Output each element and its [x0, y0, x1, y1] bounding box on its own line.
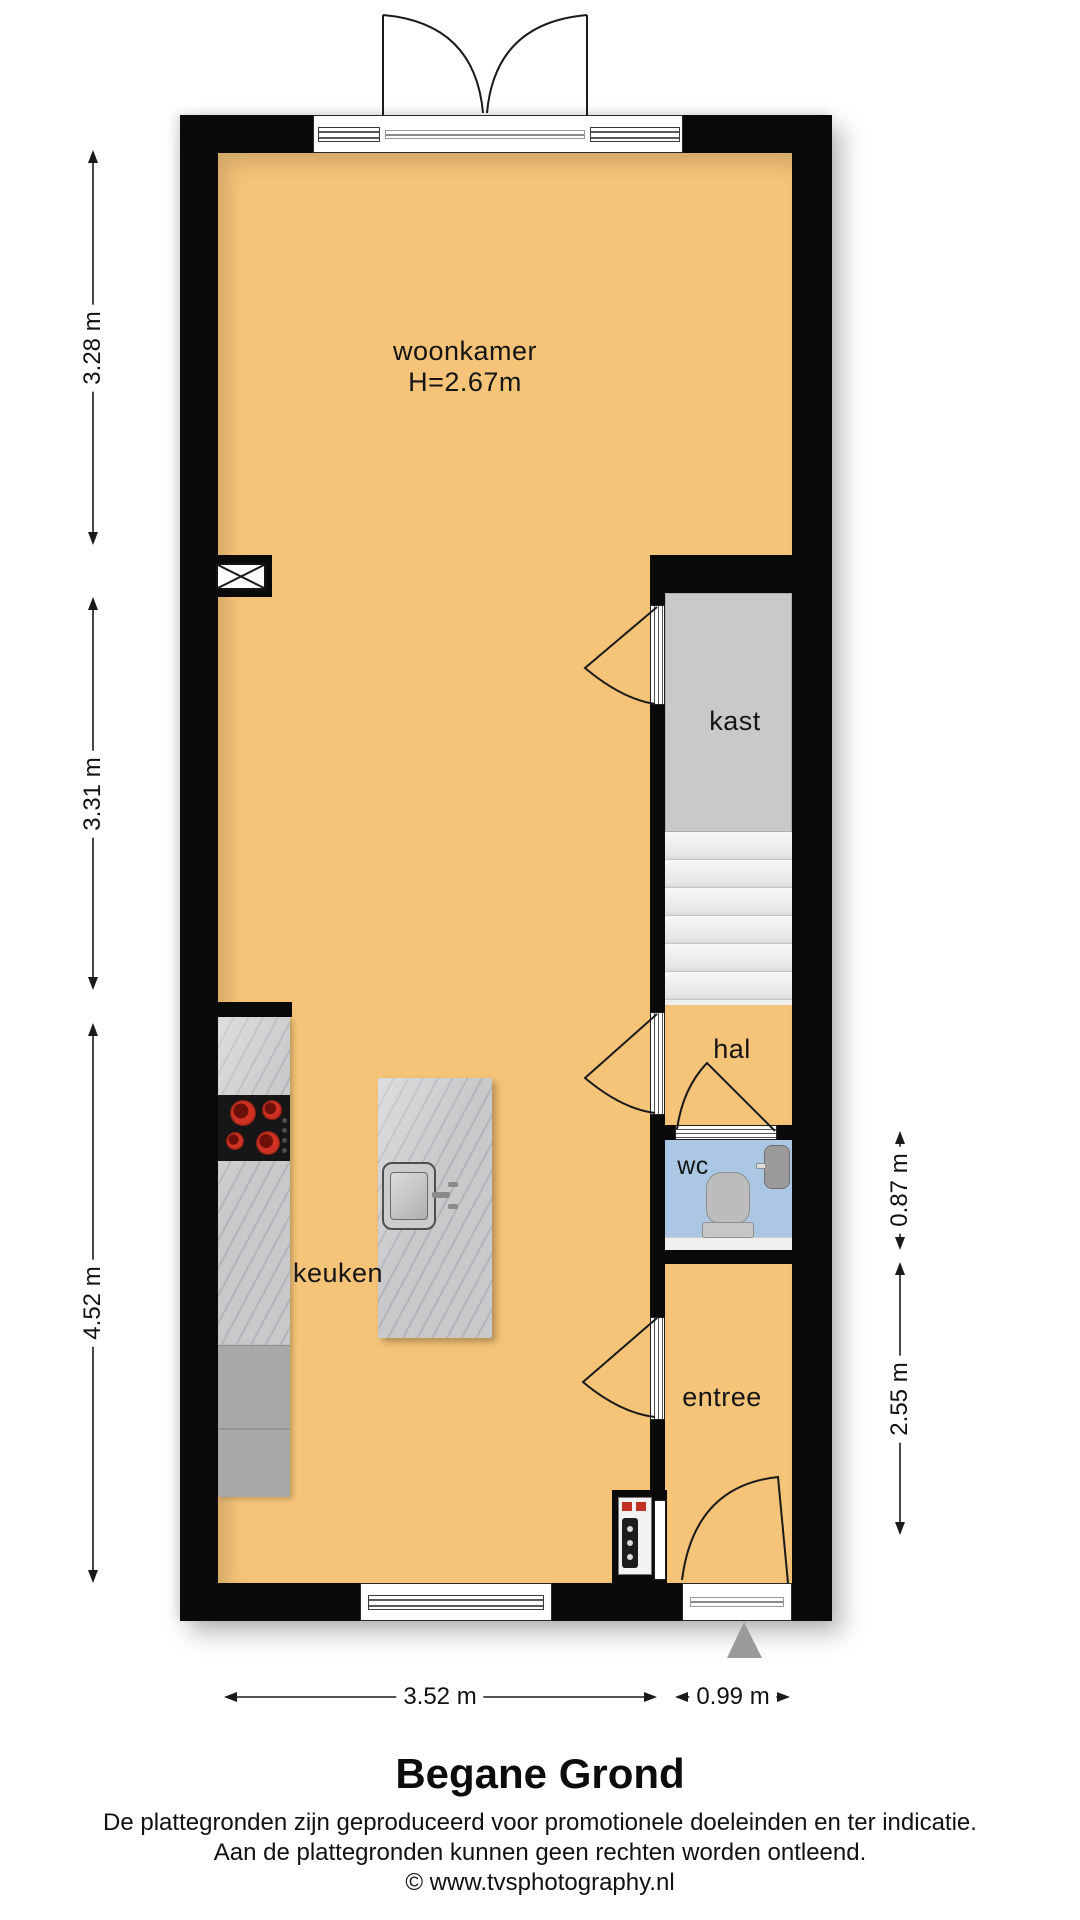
room-label-kast: kast [685, 706, 785, 737]
divider-wall-seg2 [650, 705, 665, 1012]
dim-right-1: 0.87 m [886, 1146, 914, 1233]
stair-step [665, 832, 792, 860]
divider-wall-seg3 [650, 1115, 665, 1317]
stair-step [665, 860, 792, 888]
faucet [432, 1192, 450, 1198]
kitchen-stub-wall [215, 1002, 292, 1017]
credit-line: © www.tvsphotography.nl [0, 1868, 1080, 1898]
wc-top-wall-right [777, 1125, 792, 1140]
kitchen-window-glass [368, 1595, 544, 1610]
dim-left-1: 3.28 m [79, 304, 107, 391]
woonkamer-name: woonkamer [325, 336, 605, 367]
kitchen-counter [218, 1017, 290, 1345]
wc-door-leaf [675, 1125, 777, 1140]
wall-right [792, 115, 832, 1621]
stair-step [665, 916, 792, 944]
cooktop-control-dot [282, 1128, 287, 1133]
dim-left-2: 3.31 m [79, 750, 107, 837]
wc-sink [764, 1145, 790, 1189]
room-label-wc: wc [663, 1152, 723, 1181]
french-door-threshold [385, 130, 585, 139]
french-doors-icon [383, 15, 587, 115]
kast-top-wall [650, 555, 792, 593]
burner [230, 1100, 256, 1126]
hal-door-leaf [650, 1012, 665, 1115]
floorplan-page: woonkamer H=2.67m kast hal wc keuken ent… [0, 0, 1080, 1920]
staircase [665, 832, 792, 1005]
wc-top-wall-left [665, 1125, 675, 1140]
room-label-keuken: keuken [268, 1258, 408, 1289]
stair-step [665, 888, 792, 916]
kitchen-cabinet [218, 1345, 290, 1497]
room-label-woonkamer: woonkamer H=2.67m [325, 336, 605, 398]
vent-box [216, 563, 266, 590]
cooktop-control-dot [282, 1118, 287, 1123]
front-door-leaf-strip [654, 1500, 666, 1580]
meter-red-indicator [622, 1502, 632, 1511]
wc-sink-tap [756, 1163, 766, 1169]
faucet-handle [448, 1204, 458, 1209]
dim-left-3: 4.52 m [79, 1259, 107, 1346]
meter-switch-dot [627, 1554, 633, 1560]
cabinet-divider-line [218, 1428, 290, 1430]
kast-door-leaf [650, 605, 665, 705]
burner [256, 1131, 280, 1155]
dim-bottom-2: 0.99 m [689, 1683, 776, 1711]
meter-switch-dot [627, 1526, 633, 1532]
dim-right-2: 2.55 m [886, 1355, 914, 1442]
disclaimer-line-1: De plattegronden zijn geproduceerd voor … [0, 1808, 1080, 1838]
window-glass-top-right [590, 127, 680, 142]
disclaimer: De plattegronden zijn geproduceerd voor … [0, 1808, 1080, 1898]
meter-red-indicator [636, 1502, 646, 1511]
stair-step [665, 972, 792, 1000]
divider-wall-seg1 [650, 593, 665, 605]
disclaimer-line-2: Aan de plattegronden kunnen geen rechten… [0, 1838, 1080, 1868]
cooktop-control-dot [282, 1138, 287, 1143]
burner [262, 1100, 282, 1120]
front-door-threshold [690, 1597, 784, 1607]
toilet-tank [702, 1222, 754, 1238]
dim-bottom-1: 3.52 m [396, 1683, 483, 1711]
wc-floor-band [665, 1237, 792, 1250]
burner [226, 1132, 244, 1150]
divider-wall-seg4 [650, 1420, 665, 1490]
wc-bottom-wall [665, 1250, 792, 1264]
stair-step [665, 944, 792, 972]
wall-bottom-left [180, 1583, 360, 1621]
island-sink-basin [390, 1172, 428, 1220]
cooktop-control-dot [282, 1148, 287, 1153]
woonkamer-height: H=2.67m [325, 367, 605, 398]
window-glass-top-left [318, 127, 380, 142]
wall-left [180, 115, 218, 1621]
room-label-hal: hal [682, 1034, 782, 1065]
meter-switch-dot [627, 1540, 633, 1546]
wall-bottom-mid [552, 1583, 682, 1621]
faucet-handle [448, 1182, 458, 1187]
floor-title: Begane Grond [0, 1750, 1080, 1798]
entrance-marker-icon [727, 1622, 762, 1658]
room-label-entree: entree [652, 1382, 792, 1413]
